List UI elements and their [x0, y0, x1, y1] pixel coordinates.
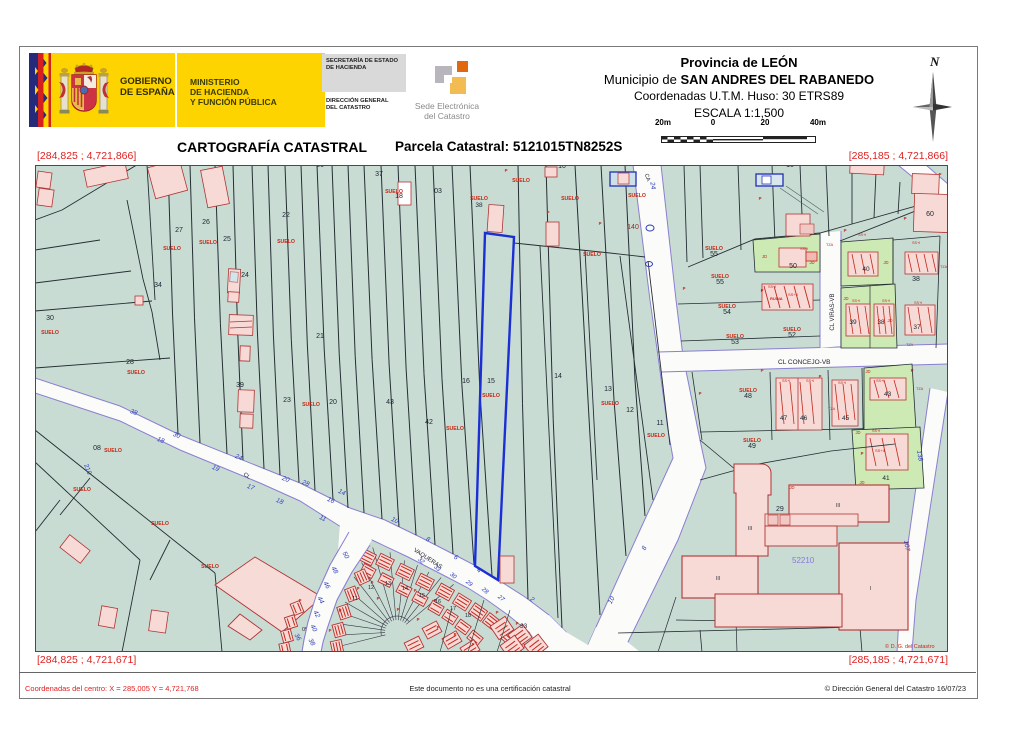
svg-text:P: P	[434, 598, 437, 603]
svg-text:TZA: TZA	[826, 243, 834, 247]
svg-text:55: 55	[710, 251, 718, 258]
svg-text:SUELO: SUELO	[647, 433, 665, 439]
svg-text:III: III	[836, 503, 840, 509]
svg-text:III: III	[748, 526, 752, 532]
svg-text:SS+I: SS+I	[806, 379, 814, 383]
svg-text:49: 49	[748, 443, 756, 450]
svg-text:SS+II: SS+II	[875, 448, 885, 453]
svg-text:P: P	[599, 221, 602, 226]
svg-text:P: P	[861, 451, 864, 456]
svg-text:P: P	[437, 625, 440, 630]
svg-text:P: P	[904, 216, 907, 221]
svg-text:SS+I: SS+I	[768, 285, 776, 289]
svg-text:SUELO: SUELO	[512, 178, 530, 184]
svg-text:55: 55	[716, 279, 724, 286]
svg-text:JD: JD	[883, 260, 888, 265]
svg-text:I: I	[870, 586, 871, 592]
svg-text:P: P	[299, 598, 302, 603]
svg-text:CL VIRAS-VB: CL VIRAS-VB	[830, 293, 836, 330]
svg-text:SUELO: SUELO	[163, 246, 181, 252]
svg-text:28: 28	[126, 359, 134, 366]
svg-text:20: 20	[329, 399, 337, 406]
svg-text:P: P	[911, 368, 914, 373]
svg-text:27: 27	[175, 227, 183, 234]
svg-text:33: 33	[520, 623, 528, 630]
svg-text:P: P	[547, 210, 550, 215]
svg-text:52: 52	[788, 332, 796, 339]
svg-text:SUELO: SUELO	[199, 240, 217, 246]
svg-text:11: 11	[352, 596, 358, 602]
svg-text:11: 11	[827, 159, 834, 166]
svg-text:08: 08	[93, 445, 101, 452]
svg-text:SUELO: SUELO	[601, 401, 619, 407]
svg-text:10: 10	[558, 163, 566, 170]
svg-text:140: 140	[627, 224, 639, 231]
svg-text:JD: JD	[887, 318, 892, 323]
svg-text:JD: JD	[843, 296, 848, 301]
svg-text:SUELO: SUELO	[127, 370, 145, 376]
svg-text:P: P	[759, 196, 762, 201]
svg-text:SS+I: SS+I	[914, 301, 922, 305]
svg-text:SUELO: SUELO	[73, 487, 91, 493]
svg-text:26: 26	[202, 219, 210, 226]
svg-text:14: 14	[402, 586, 408, 592]
svg-text:P: P	[397, 607, 400, 612]
svg-text:P: P	[939, 172, 942, 177]
svg-text:SUELO: SUELO	[446, 426, 464, 432]
svg-text:SUELO: SUELO	[482, 393, 500, 399]
svg-text:SS+I: SS+I	[800, 247, 808, 251]
svg-text:24: 24	[241, 272, 249, 279]
svg-text:40: 40	[862, 266, 870, 273]
svg-text:P: P	[371, 580, 374, 585]
svg-text:P: P	[377, 596, 380, 601]
svg-text:SUELO: SUELO	[561, 196, 579, 202]
svg-text:P: P	[329, 628, 332, 633]
svg-text:SS+I: SS+I	[912, 241, 920, 245]
svg-text:24: 24	[648, 181, 656, 191]
svg-text:37: 37	[375, 171, 383, 178]
svg-text:45: 45	[842, 415, 850, 422]
svg-text:50: 50	[789, 263, 797, 270]
svg-text:SS+I: SS+I	[782, 379, 790, 383]
svg-text:TZA: TZA	[828, 407, 836, 411]
svg-text:13: 13	[385, 581, 391, 587]
svg-text:© D. G. del Catastro: © D. G. del Catastro	[885, 643, 935, 650]
svg-text:TZA: TZA	[940, 265, 948, 269]
svg-text:CL CONCEJO-VB: CL CONCEJO-VB	[778, 359, 831, 366]
svg-text:54: 54	[723, 309, 731, 316]
svg-text:P: P	[454, 632, 457, 637]
svg-text:SS+I: SS+I	[872, 429, 880, 433]
svg-text:38: 38	[912, 276, 920, 283]
svg-text:12: 12	[368, 585, 374, 591]
svg-text:SUELO: SUELO	[201, 564, 219, 570]
svg-text:15: 15	[419, 593, 425, 599]
svg-text:P: P	[417, 617, 420, 622]
svg-text:37: 37	[913, 324, 921, 331]
svg-text:SUELO: SUELO	[302, 402, 320, 408]
svg-text:SUELO: SUELO	[628, 193, 646, 199]
svg-text:SUELO: SUELO	[277, 239, 295, 245]
svg-text:41: 41	[882, 475, 890, 482]
svg-text:SUELO: SUELO	[41, 330, 59, 336]
svg-text:39: 39	[236, 382, 244, 389]
svg-text:16: 16	[462, 378, 470, 385]
svg-text:P: P	[505, 168, 508, 173]
svg-text:SS+I: SS+I	[876, 379, 884, 383]
svg-text:JD: JD	[809, 260, 814, 265]
svg-text:18: 18	[465, 613, 471, 619]
svg-text:JD: JD	[865, 369, 870, 374]
svg-text:46: 46	[800, 415, 808, 422]
svg-text:43: 43	[884, 391, 892, 398]
svg-text:47: 47	[780, 415, 788, 422]
svg-text:P: P	[496, 610, 499, 615]
svg-text:P: P	[472, 642, 475, 647]
svg-text:P: P	[516, 621, 519, 626]
svg-text:TZA: TZA	[906, 343, 914, 347]
svg-text:22: 22	[282, 212, 290, 219]
svg-text:12: 12	[626, 407, 634, 414]
svg-text:SS+I: SS+I	[852, 299, 860, 303]
svg-text:13: 13	[604, 386, 612, 393]
svg-text:P: P	[414, 588, 417, 593]
svg-text:P: P	[683, 286, 686, 291]
svg-text:23: 23	[283, 397, 291, 404]
svg-text:JD: JD	[855, 430, 860, 435]
svg-text:RUINA: RUINA	[770, 296, 783, 301]
svg-text:JD: JD	[762, 254, 767, 259]
svg-text:SUELO: SUELO	[151, 521, 169, 527]
svg-text:42: 42	[425, 419, 433, 426]
svg-text:15: 15	[487, 378, 495, 385]
svg-text:P: P	[819, 374, 822, 379]
svg-text:JD: JD	[789, 485, 794, 490]
svg-text:P: P	[339, 608, 342, 613]
svg-text:21: 21	[316, 333, 324, 340]
svg-text:14: 14	[554, 373, 562, 380]
svg-text:SS+II: SS+II	[788, 292, 798, 297]
svg-text:52210: 52210	[792, 556, 815, 565]
svg-text:29: 29	[776, 506, 784, 513]
svg-text:30: 30	[46, 315, 54, 322]
svg-text:P: P	[844, 228, 847, 233]
svg-text:60: 60	[926, 211, 934, 218]
svg-text:SUELO: SUELO	[385, 189, 403, 195]
svg-text:P: P	[357, 586, 360, 591]
svg-text:25: 25	[223, 236, 231, 243]
svg-text:38: 38	[877, 319, 885, 326]
svg-text:III: III	[716, 576, 720, 582]
svg-text:SS+I: SS+I	[882, 299, 890, 303]
svg-text:TZA: TZA	[916, 387, 924, 391]
svg-text:53: 53	[731, 339, 739, 346]
svg-text:SS+I: SS+I	[858, 233, 866, 237]
svg-text:43: 43	[386, 399, 394, 406]
svg-text:P: P	[699, 391, 702, 396]
svg-text:JD: JD	[859, 480, 864, 485]
svg-text:38: 38	[475, 202, 483, 209]
svg-text:11: 11	[656, 420, 663, 427]
svg-text:SUELO: SUELO	[104, 448, 122, 454]
svg-text:P: P	[761, 288, 764, 293]
svg-text:SS+I: SS+I	[838, 381, 846, 385]
svg-text:P: P	[761, 368, 764, 373]
svg-text:03: 03	[434, 188, 442, 195]
svg-text:48: 48	[744, 393, 752, 400]
svg-text:SUELO: SUELO	[583, 252, 601, 258]
svg-text:39: 39	[849, 319, 857, 326]
svg-text:34: 34	[154, 282, 162, 289]
